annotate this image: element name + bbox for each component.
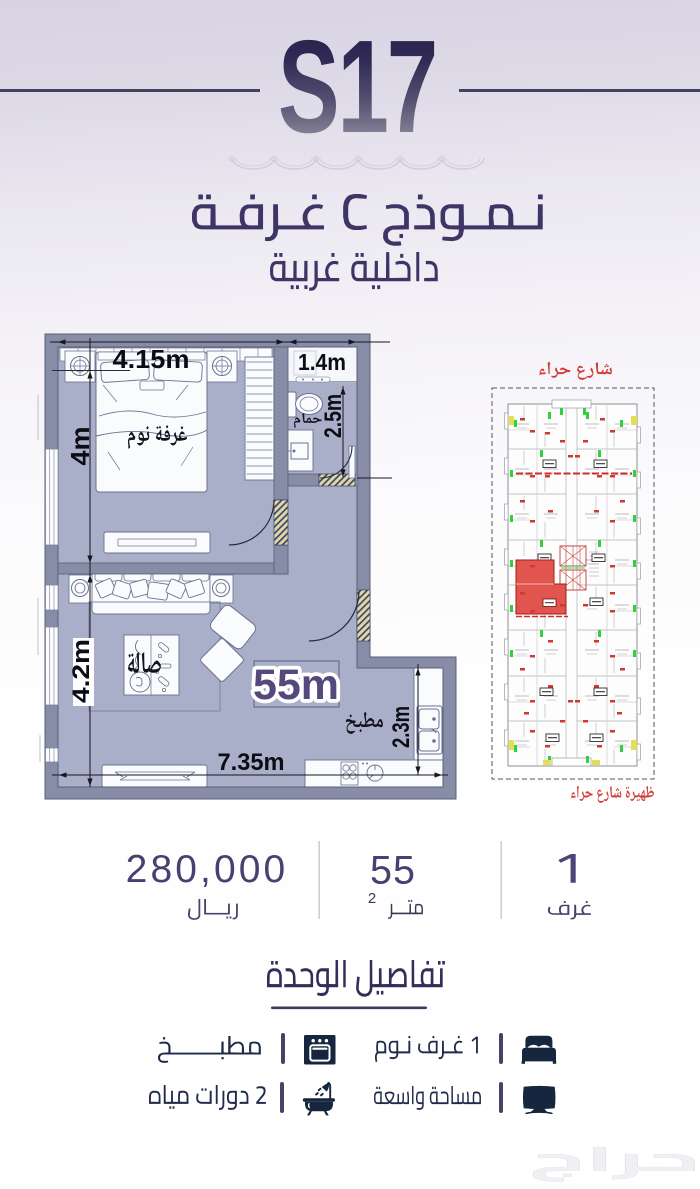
svg-text:4m: 4m: [65, 427, 95, 466]
svg-text:2.3m: 2.3m: [388, 706, 415, 748]
svg-text:55: 55: [370, 849, 416, 893]
svg-text:4.2m: 4.2m: [68, 639, 95, 703]
svg-text:4.15m: 4.15m: [113, 344, 190, 374]
svg-text:1.4m: 1.4m: [298, 349, 346, 375]
svg-text:2: 2: [368, 890, 376, 907]
svg-text:7.35m: 7.35m: [218, 749, 285, 776]
svg-text:2.5m: 2.5m: [320, 394, 347, 438]
svg-text:280,000: 280,000: [126, 848, 289, 891]
svg-text:55m: 55m: [253, 661, 339, 709]
